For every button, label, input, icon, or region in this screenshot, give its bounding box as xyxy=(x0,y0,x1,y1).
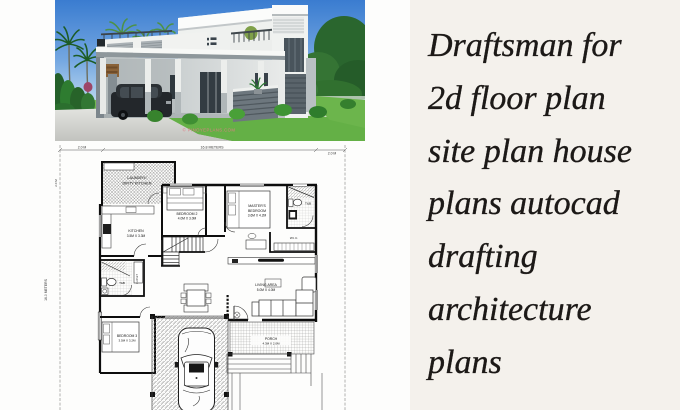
svg-text:4.0M X 3.0M: 4.0M X 3.0M xyxy=(178,217,197,221)
svg-text:LAUNDRY/: LAUNDRY/ xyxy=(127,176,147,180)
svg-text:LIVING AREA: LIVING AREA xyxy=(255,283,277,287)
svg-text:© PINOYEPLANS.COM: © PINOYEPLANS.COM xyxy=(183,128,236,133)
svg-text:T&B: T&B xyxy=(119,281,125,285)
svg-text:4.3M X 2.0M: 4.3M X 2.0M xyxy=(262,342,280,346)
svg-text:3.6M X 4.2M: 3.6M X 4.2M xyxy=(248,214,267,218)
svg-text:DIRTY KITCHEN: DIRTY KITCHEN xyxy=(123,182,152,186)
svg-text:2.0 M: 2.0 M xyxy=(78,145,87,149)
svg-text:T&B: T&B xyxy=(305,202,311,206)
svg-text:BEDROOM 2: BEDROOM 2 xyxy=(176,212,197,216)
svg-text:5.0M X 4.0M: 5.0M X 4.0M xyxy=(257,288,276,292)
svg-text:W.I.C.: W.I.C. xyxy=(290,236,298,240)
svg-text:PORCH: PORCH xyxy=(265,337,278,341)
svg-text:CLOSET: CLOSET xyxy=(136,274,139,284)
svg-text:3.5M X 3.3M: 3.5M X 3.3M xyxy=(127,234,146,238)
svg-text:MASTER'S: MASTER'S xyxy=(248,204,266,208)
svg-text:2.0 M: 2.0 M xyxy=(54,179,58,187)
svg-text:BEDROOM 3: BEDROOM 3 xyxy=(117,334,137,338)
svg-text:3.5M X 3.2M: 3.5M X 3.2M xyxy=(118,339,136,343)
svg-text:16.0 METERS: 16.0 METERS xyxy=(44,278,48,300)
svg-text:16.8 METERS: 16.8 METERS xyxy=(201,145,225,149)
svg-text:2.0 M: 2.0 M xyxy=(328,152,337,156)
svg-text:KITCHEN: KITCHEN xyxy=(128,229,144,233)
svg-text:BEDROOM: BEDROOM xyxy=(248,209,266,213)
